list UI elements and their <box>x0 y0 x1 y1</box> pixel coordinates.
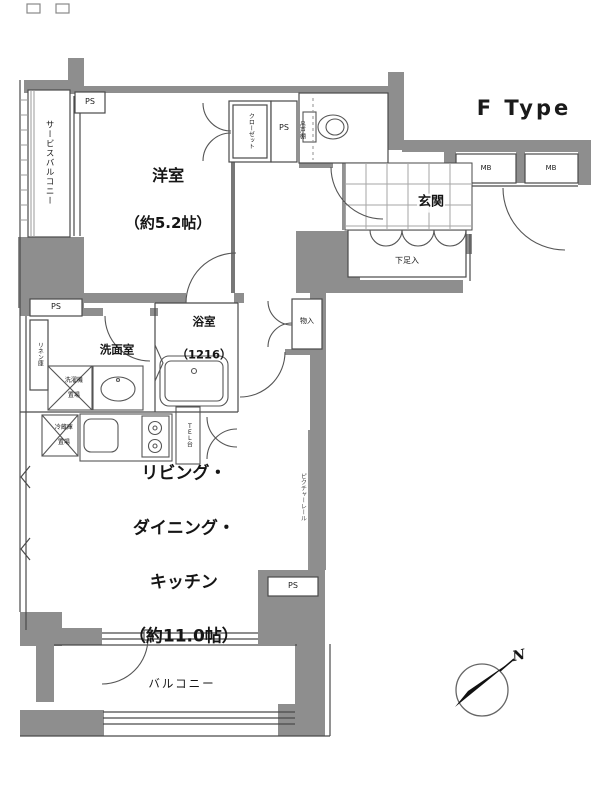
closet-label: クローゼット <box>246 113 255 149</box>
mb-label-2: MB <box>546 163 557 173</box>
ps-label-washroom: PS <box>51 301 61 313</box>
ps-label-top-left: PS <box>85 96 95 108</box>
genkan-tile-grid <box>345 163 472 230</box>
washer-space-label: 洗濯機 置場 <box>57 370 83 406</box>
closet-door-arc <box>203 103 231 131</box>
ldk-line3: キッチン <box>150 573 218 593</box>
hall-closet-door-arc <box>268 323 292 347</box>
ldk-line4: （約11.0帖） <box>129 627 239 647</box>
bath-label: 浴室 （1216） <box>160 296 231 379</box>
fridge-space-label: 冷蔵庫 置場 <box>47 417 73 453</box>
ldk-line2: ダイニング・ <box>133 518 235 538</box>
hall-closet-door-arc <box>268 301 292 325</box>
service-balcony-label: サービスバルコニー <box>43 120 55 206</box>
bedroom-label: 洋室 （約5.2帖） <box>103 141 212 258</box>
bedroom-size: （約5.2帖） <box>125 213 212 231</box>
entrance-door-arc <box>503 188 565 250</box>
ldk-label: リビング・ ダイニング・ キッチン （約11.0帖） <box>105 434 239 679</box>
mb-label-1: MB <box>481 163 492 173</box>
picture-rail-label: ピクチャーレール <box>298 473 307 521</box>
washbasin-icon <box>93 366 143 410</box>
tel-stand-label: ＴＥＬ台 <box>184 423 193 447</box>
washer-line1: 洗濯機 <box>65 377 83 384</box>
balcony-label: バルコニー <box>148 676 215 693</box>
bath-name: 浴室 <box>193 314 216 328</box>
washroom-label: 洗面室 <box>100 342 135 359</box>
plan-type-title: F Type <box>477 93 571 123</box>
fridge-line1: 冷蔵庫 <box>55 424 73 431</box>
ps-label-bedroom: PS <box>279 122 289 134</box>
washer-line2: 置場 <box>68 392 80 399</box>
bath-size: （1216） <box>177 347 232 361</box>
fridge-line2: 置場 <box>58 439 70 446</box>
hall-closet-label: 物入 <box>300 316 314 326</box>
genkan-label: 玄関 <box>417 194 445 213</box>
ldk-line1: リビング・ <box>141 464 226 484</box>
shoe-cabinet-label: 下足入 <box>394 255 420 267</box>
ldk-door-arc <box>240 352 285 397</box>
ps-label-ldk: PS <box>288 580 298 592</box>
bedroom-name: 洋室 <box>152 166 184 185</box>
linen-closet-label: リネン庫 <box>35 342 44 366</box>
floor-plan-page: F Type 洋室 （約5.2帖） リビング・ ダイニング・ キッチン （約11… <box>0 0 600 800</box>
compass-icon <box>455 659 514 716</box>
toilet-shelf-label: 吊戸棚 <box>297 121 306 139</box>
